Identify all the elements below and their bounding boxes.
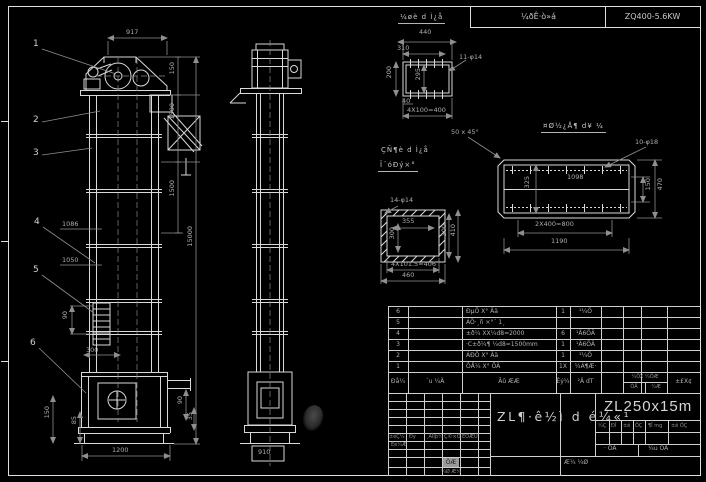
dim-holes-11: 11-φ14 <box>459 54 482 61</box>
dim-910: 910 <box>258 449 270 456</box>
bom-header-mat: ²Ä dT <box>570 379 601 385</box>
dim-1500-a: 1500 <box>169 103 176 120</box>
dim-310: 310 <box>397 45 409 52</box>
scale-cell: ±ê ÖÇ <box>671 424 687 429</box>
bom-no: 4 <box>388 331 408 337</box>
bom-header-note: ±£X¢ <box>667 379 700 385</box>
bom-no: 5 <box>388 320 408 326</box>
dim-460: 460 <box>402 272 414 279</box>
dim-15000: 15000 <box>187 226 194 247</box>
detail-c-title-2: Î¨óÐý×° <box>378 162 418 172</box>
detail-b-title: ¤Ø½¿Å¶ d¥ ¼ <box>541 123 606 133</box>
rev-col-count: Ðý <box>409 435 416 440</box>
rev-col-mark: ±êÇ¼ <box>389 435 405 440</box>
mark-cell-4: ÖÇ <box>635 424 642 429</box>
bom-mat: ¼Á¶Æ· <box>570 364 601 370</box>
dim-1098: 1098 <box>567 174 584 181</box>
bom-header-code: ´u ¼Ä <box>408 379 462 385</box>
dim-355: 355 <box>402 218 414 225</box>
sheet-count-note: Æ¼ ¼Ø <box>564 460 588 466</box>
cad-drawing-sheet: ¼ðÊ·ò»á ZQ400-5.6KW 1 2 3 4 5 6 917 150 … <box>0 0 706 482</box>
dim-holes-10: 10-φ18 <box>635 139 658 146</box>
dim-200: 200 <box>386 66 393 78</box>
dim-1190: 1190 <box>551 238 568 245</box>
detail-a-title: ¼øè d Ì¿å <box>398 14 445 24</box>
dim-917: 917 <box>126 29 138 36</box>
dim-325: 325 <box>524 176 531 188</box>
dim-holes-14: 14-φ14 <box>390 197 413 204</box>
bom-qty: 6 <box>556 331 570 337</box>
dim-2x400: 2X400=800 <box>535 221 574 228</box>
chamfer-note: 50 x 45° <box>451 129 479 136</box>
dim-410: 410 <box>450 224 457 236</box>
balloon-3: 3 <box>33 149 39 158</box>
mark-cell-3: ±ê <box>623 424 630 429</box>
dimension-lines <box>39 38 662 461</box>
bom-qty: 1X <box>556 364 570 370</box>
dim-150-flange: 150 <box>645 178 652 190</box>
balloon-4: 4 <box>34 218 40 227</box>
dim-1086: 1086 <box>62 221 79 228</box>
bom-name: ÔÅ¼ X° ÕÄ <box>466 364 500 370</box>
dim-35-boot: 35 <box>187 412 194 420</box>
bom-mat: ¹¼Ö <box>570 353 601 359</box>
bom-name: ±ð¼ XX¼d8=2000 <box>466 331 524 337</box>
bom-header-weight-total: ¼Æ <box>645 385 667 390</box>
bom-mat: ¹¼Ö <box>570 309 601 315</box>
detail-views-linework <box>381 59 635 262</box>
dim-440: 440 <box>419 29 431 36</box>
bom-header-weight: ¼ÖX ¼ÖÆ <box>623 375 667 380</box>
dim-300-left: 300 <box>389 227 396 239</box>
dim-300-right: 300 <box>441 224 448 236</box>
bom-name: ÁÐÖ X° Ää <box>466 353 498 359</box>
titlebar-project-label: ¼ðÊ·ò»á <box>472 13 605 21</box>
designer-label: Éè¼Æ <box>391 443 407 448</box>
bom-header-name: Ãû ÆÆ <box>462 379 556 385</box>
dim-85-boot: 85 <box>71 416 78 424</box>
bom-mat: ¹Ä6ÖÂ <box>570 342 601 348</box>
balloon-1: 1 <box>33 40 39 49</box>
dim-4x101: 4X101.5=406 <box>391 261 436 268</box>
bom-no: 1 <box>388 364 408 370</box>
balloon-6: 6 <box>30 339 36 348</box>
bom-no: 3 <box>388 342 408 348</box>
bom-qty: 1 <box>556 342 570 348</box>
mark-cell-1: ¼Ç <box>598 424 606 429</box>
rev-col-doc: ¸ÄÎļþ¼ <box>426 435 443 440</box>
dim-295: 295 <box>415 68 422 80</box>
bom-qty: 1 <box>556 309 570 315</box>
bom-header-weight-unit: ÕÄ <box>623 385 645 390</box>
balloon-5: 5 <box>33 266 39 275</box>
dim-1050: 1050 <box>62 257 79 264</box>
bom-name: ·C±ð¼¶ ¼d8=1500mm <box>466 342 538 348</box>
rev-col-sign: Ç©×Ö <box>444 435 461 440</box>
dim-150-boot: 150 <box>44 406 51 418</box>
front-view-linework <box>74 57 202 444</box>
mark-cell-2: ÐÎ <box>611 424 616 429</box>
dim-90-boot: 90 <box>177 396 184 404</box>
bom-mat: ¹Ä6ÖÂ <box>570 331 601 337</box>
dim-1500-b: 1500 <box>169 180 176 197</box>
dim-470: 470 <box>657 178 664 190</box>
side-view-linework <box>230 44 302 461</box>
bom-no: 6 <box>388 309 408 315</box>
dim-300: 300 <box>86 347 98 354</box>
balloon-2: 2 <box>33 116 39 125</box>
detail-c-title-1: ÇÑ¶è d Ì¿å <box>381 147 429 154</box>
bom-qty: 1 <box>556 353 570 359</box>
rev-col-date: ÈÕÆÚ <box>462 435 478 440</box>
approval-stamp-cell: ÖÆ <box>443 458 459 467</box>
titlebar-reducer-model: ZQ400-5.6KW <box>605 13 700 21</box>
bom-name: ÐµÖ X° Ää <box>466 309 498 315</box>
scale-label: · ÕÄ <box>604 446 617 452</box>
dim-40: 40 <box>402 98 410 105</box>
dim-4x100: 4X100=400 <box>407 107 446 114</box>
bom-header-no: Ðå¼ <box>388 379 408 385</box>
dim-150-right: 150 <box>169 62 176 74</box>
bom-no: 2 <box>388 353 408 359</box>
sheet-note: ¼Ø Æ¼ <box>441 470 461 475</box>
mass-cell: ¶Î mg <box>648 424 662 429</box>
dim-90-left: 90 <box>62 311 69 319</box>
sheet-label: ¼u ÕÄ <box>648 446 668 452</box>
drawing-title: ZL¶·ê½ì d é¼«¹ <box>497 409 631 424</box>
dim-1200: 1200 <box>112 447 129 454</box>
bom-name: ÁÖ·¸ñ ×°´ 1¸ <box>466 320 505 326</box>
